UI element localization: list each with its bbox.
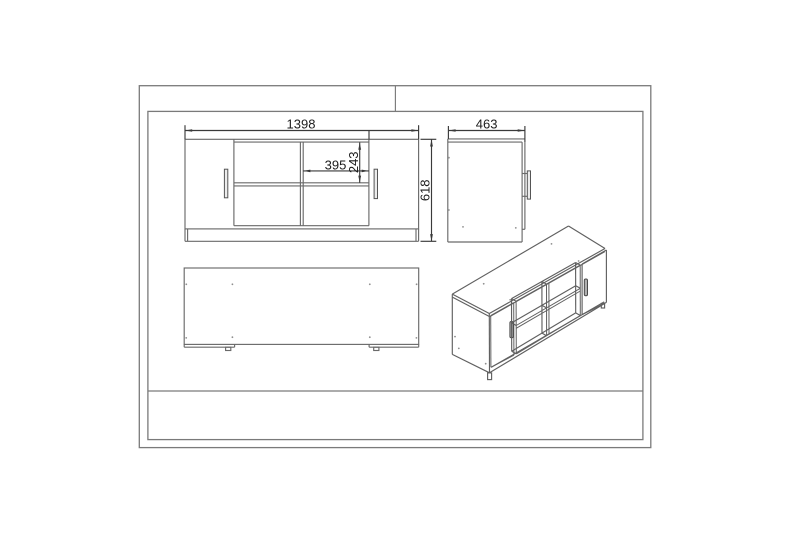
svg-text:395: 395 bbox=[325, 158, 347, 173]
svg-text:1398: 1398 bbox=[287, 116, 316, 131]
svg-text:618: 618 bbox=[418, 179, 433, 201]
svg-text:463: 463 bbox=[476, 116, 498, 131]
svg-text:243: 243 bbox=[346, 151, 361, 173]
